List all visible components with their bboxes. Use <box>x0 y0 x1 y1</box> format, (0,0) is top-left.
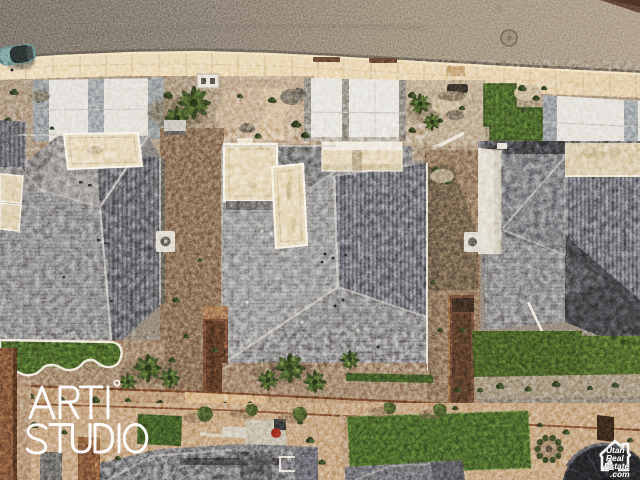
svg-text:.com: .com <box>610 469 630 479</box>
